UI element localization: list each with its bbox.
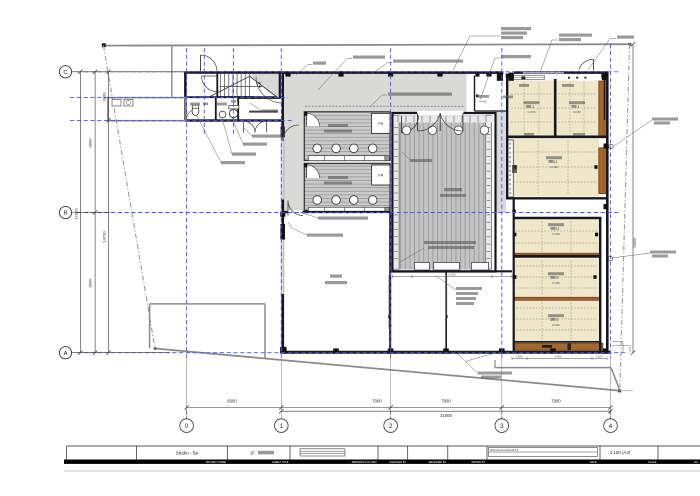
svg-text:21000: 21000 [440, 413, 452, 418]
svg-text:8: 8 [557, 276, 559, 280]
svg-text:4: 4 [609, 423, 613, 430]
svg-text:h=450: h=450 [479, 100, 487, 104]
svg-text:7000: 7000 [372, 398, 382, 403]
svg-text:2: 2 [389, 423, 393, 430]
svg-text:1F: 1F [250, 451, 255, 456]
svg-text:h=450: h=450 [573, 110, 581, 114]
svg-text:4: 4 [532, 105, 534, 109]
svg-text:1: 1 [280, 423, 284, 430]
svg-text:3800: 3800 [102, 92, 107, 102]
svg-text:h=450: h=450 [550, 165, 558, 169]
svg-text:5,400: 5,400 [449, 273, 456, 277]
svg-text:PROJECT NAME: PROJECT NAME [206, 460, 227, 464]
svg-text:UP: UP [256, 82, 262, 86]
svg-text:FR: FR [378, 173, 383, 177]
svg-text:Studio - Be: Studio - Be [176, 450, 199, 455]
svg-text:12: 12 [556, 227, 560, 231]
svg-text:12: 12 [554, 160, 558, 164]
svg-text:REMARKS COLUMN: REMARKS COLUMN [352, 460, 377, 464]
svg-text:h=450: h=450 [552, 323, 560, 327]
svg-text:DESIGNED BY: DESIGNED BY [429, 460, 447, 464]
svg-text:13600: 13600 [633, 238, 637, 248]
svg-text:8900: 8900 [88, 138, 93, 148]
svg-text:DATE: DATE [590, 460, 597, 464]
svg-text:FR: FR [378, 122, 383, 126]
svg-text:h=450: h=450 [552, 232, 560, 236]
svg-text:2013.06.14 2013.05.14: 2013.06.14 2013.05.14 [490, 448, 519, 452]
svg-text:8900: 8900 [88, 278, 93, 288]
svg-text:SHEET TITLE: SHEET TITLE [272, 460, 289, 464]
svg-text:1,820: 1,820 [596, 355, 603, 359]
svg-text:NO.: NO. [694, 460, 699, 464]
svg-text:h=450: h=450 [528, 110, 536, 114]
svg-text:A: A [64, 351, 68, 357]
svg-text:6000: 6000 [227, 398, 237, 403]
svg-text:1,820: 1,820 [516, 355, 523, 359]
svg-text:7000: 7000 [441, 398, 451, 403]
svg-text:h=450: h=450 [552, 281, 560, 285]
svg-text:8: 8 [557, 318, 559, 322]
svg-text:7000: 7000 [551, 398, 561, 403]
svg-text:14700: 14700 [102, 231, 107, 243]
svg-text:DRAWN BY: DRAWN BY [472, 460, 486, 464]
svg-text:1:100 (A3): 1:100 (A3) [610, 450, 631, 455]
svg-text:B: B [64, 211, 68, 217]
svg-text:SCALE: SCALE [648, 460, 657, 464]
svg-text:0: 0 [185, 423, 189, 430]
svg-text:C: C [63, 70, 67, 76]
svg-text:3: 3 [500, 423, 504, 430]
svg-text:CHECKED BY: CHECKED BY [389, 460, 406, 464]
svg-text:5,460: 5,460 [555, 355, 562, 359]
svg-text:4: 4 [578, 105, 580, 109]
svg-text:17800: 17800 [73, 208, 78, 220]
